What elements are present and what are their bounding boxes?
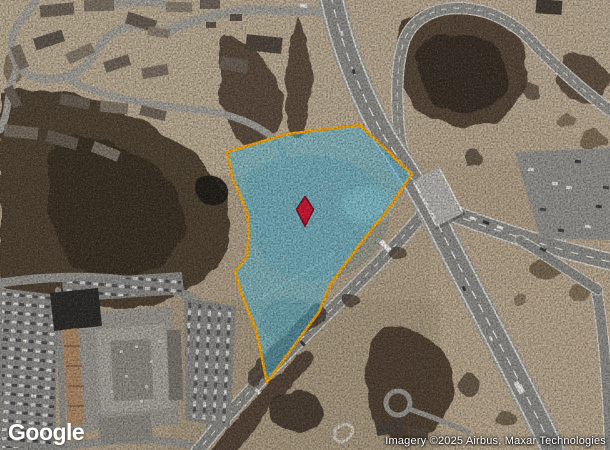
imagery-attribution: Imagery ©2025 Airbus, Maxar Technologies [385, 435, 606, 447]
google-logo[interactable]: Google [8, 419, 84, 446]
map-viewport[interactable]: Google Imagery ©2025 Airbus, Maxar Techn… [0, 0, 610, 450]
imagery-grain [0, 0, 610, 450]
